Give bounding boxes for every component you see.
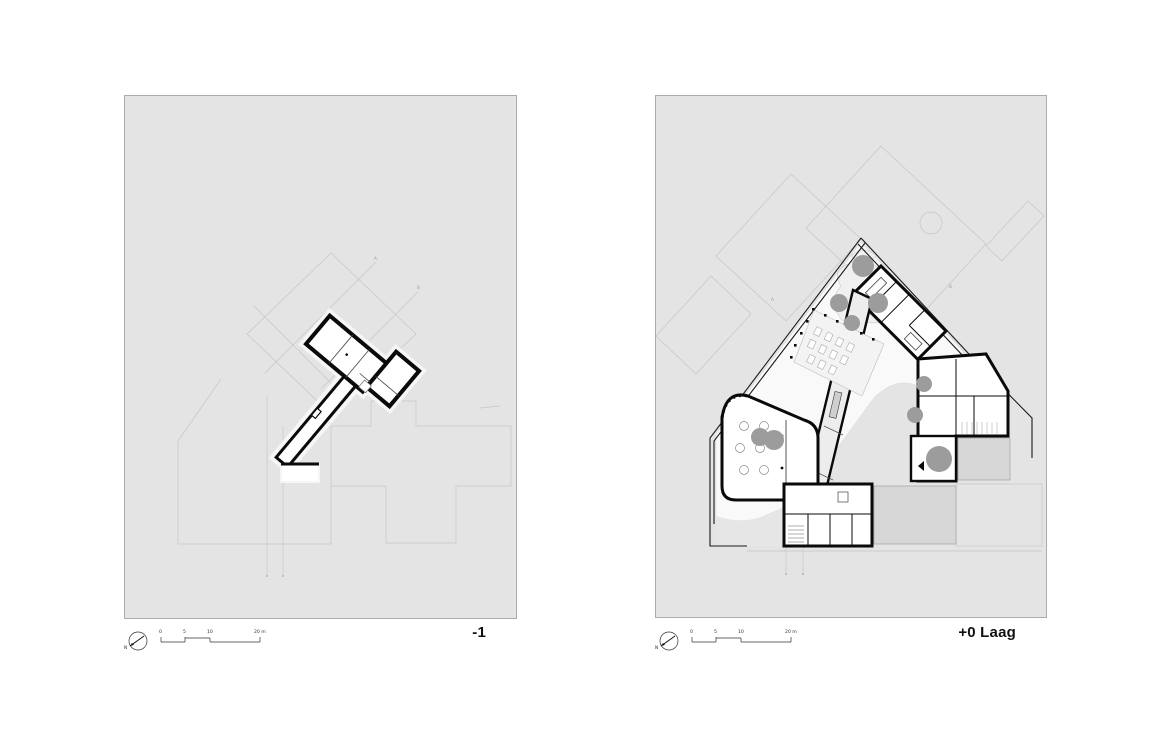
section-marker-a-label: A [374, 256, 377, 261]
plan-sheet-plus0: A B [655, 95, 1047, 618]
plan-title-plus0: +0 Laag [655, 624, 1016, 641]
floor-plan-plus0-drawing: A B [656, 96, 1046, 617]
site-context-lines: A B [178, 253, 511, 577]
building-footprint-minus1 [238, 304, 419, 492]
corridor-end-landing [281, 464, 319, 482]
floor-plan-minus1-drawing: A B [125, 96, 516, 618]
south-block [784, 484, 872, 546]
plan-title-minus1: -1 [124, 624, 486, 641]
plan-sheet-minus1: A B [124, 95, 517, 619]
north-label: N [655, 645, 658, 650]
section-marker-b-label: B [949, 284, 952, 289]
section-marker-a-label: A [771, 297, 774, 302]
section-marker-b-label: B [417, 285, 420, 290]
north-label: N [124, 645, 127, 650]
